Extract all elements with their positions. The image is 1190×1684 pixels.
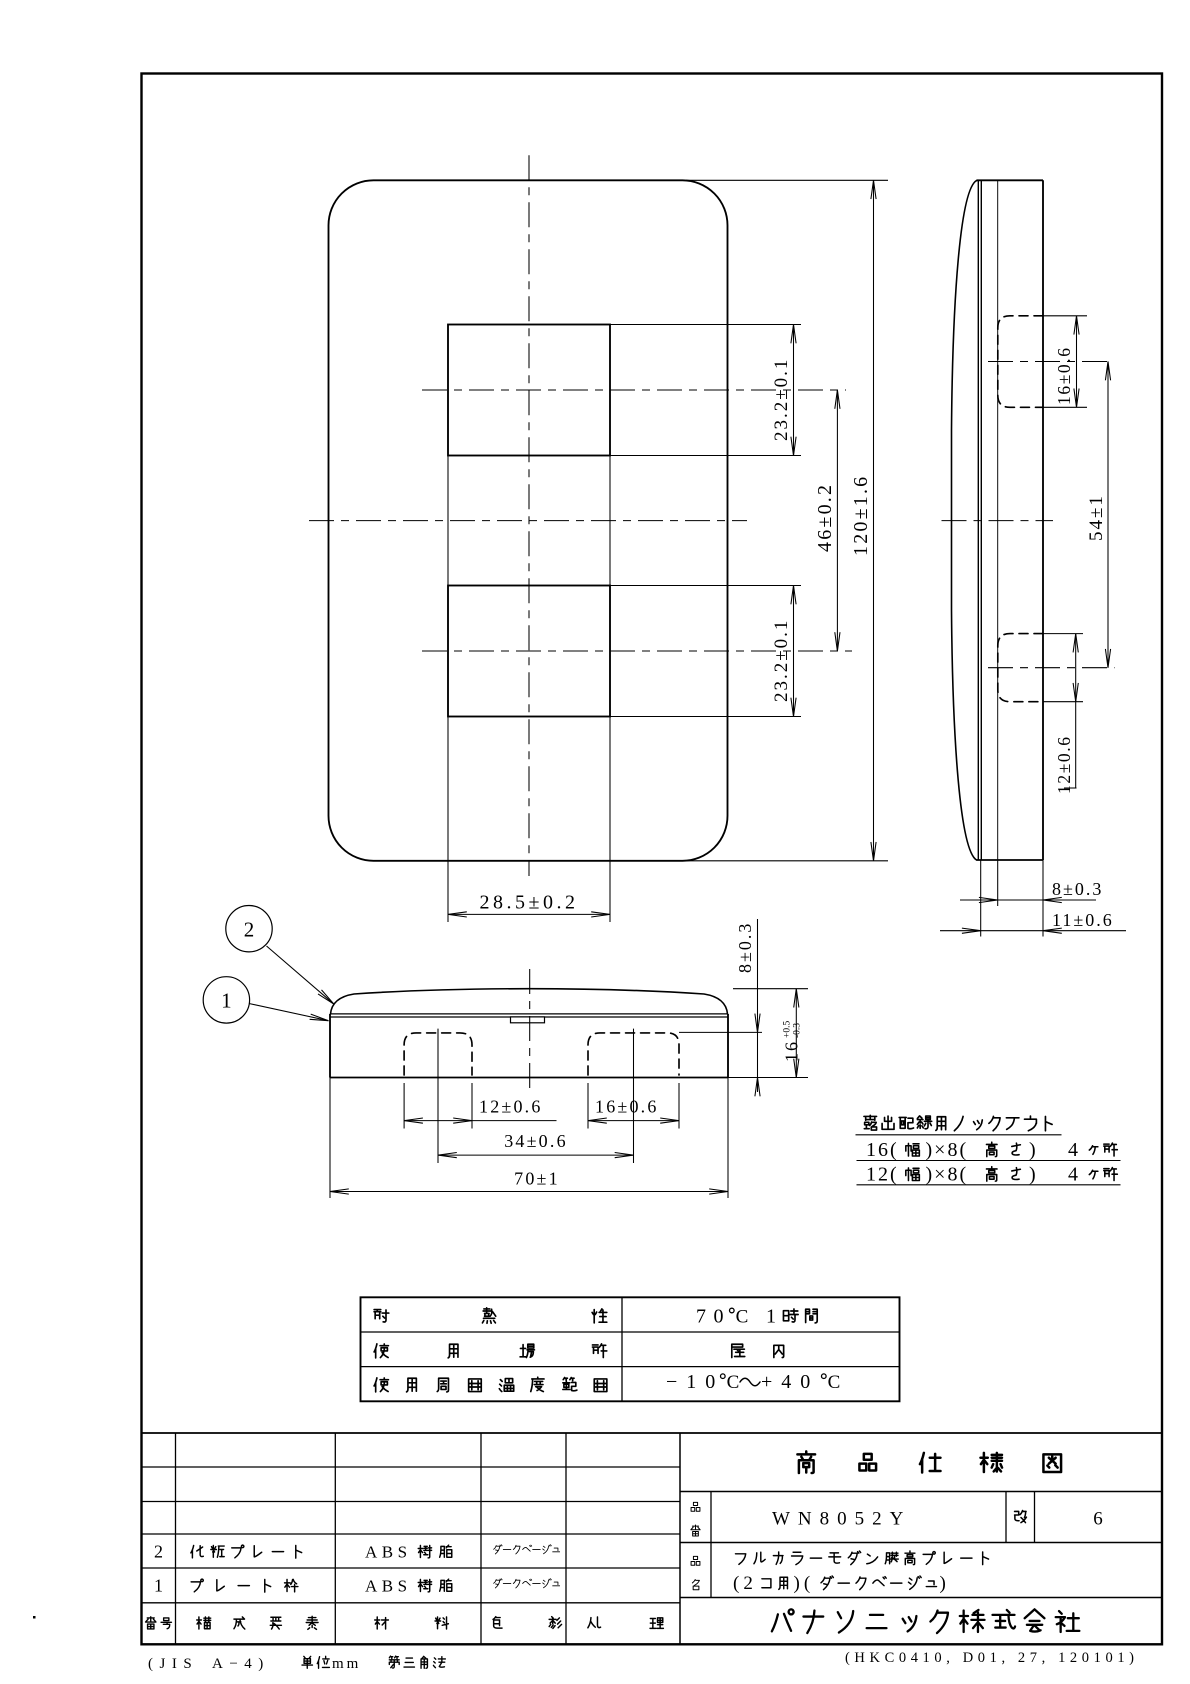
svg-text:12±0.6: 12±0.6: [1054, 735, 1074, 794]
svg-text:2: 2: [244, 918, 255, 942]
svg-text:(HKC0410, D01, 27, 120101): (HKC0410, D01, 27, 120101): [845, 1650, 1139, 1666]
svg-text:8±0.3: 8±0.3: [1052, 879, 1103, 899]
svg-text:): ): [1029, 1139, 1038, 1161]
svg-text:−10: −10: [666, 1371, 724, 1393]
svg-text:54±1: 54±1: [1086, 494, 1107, 541]
svg-text:16(: 16(: [866, 1139, 899, 1161]
svg-text:1: 1: [766, 1306, 776, 1328]
svg-text:4: 4: [1068, 1139, 1085, 1161]
svg-text:23.2±0.1: 23.2±0.1: [771, 358, 792, 441]
svg-text:+40: +40: [761, 1371, 819, 1393]
svg-text:(2: (2: [733, 1573, 757, 1594]
svg-text:C: C: [736, 1307, 749, 1328]
svg-text:-0.3: -0.3: [793, 1023, 803, 1038]
svg-text:16: 16: [782, 1040, 802, 1062]
svg-text:)(: )(: [794, 1573, 815, 1594]
svg-text:120±1.6: 120±1.6: [850, 475, 872, 556]
svg-text:34±0.6: 34±0.6: [504, 1131, 568, 1151]
svg-text:): ): [940, 1573, 950, 1594]
svg-text:6: 6: [1093, 1509, 1103, 1530]
svg-text:70±1: 70±1: [514, 1169, 560, 1189]
svg-text:23.2±0.1: 23.2±0.1: [771, 619, 792, 702]
svg-text:ABS: ABS: [365, 1543, 412, 1562]
svg-text:12±0.6: 12±0.6: [479, 1097, 543, 1117]
svg-text:1: 1: [154, 1576, 163, 1596]
svg-text:C: C: [727, 1372, 740, 1393]
svg-text:)×8(: )×8(: [926, 1164, 969, 1186]
svg-text:12(: 12(: [866, 1164, 899, 1186]
svg-text:4: 4: [1068, 1164, 1085, 1186]
svg-text:28.5±0.2: 28.5±0.2: [480, 892, 579, 914]
svg-text:ABS: ABS: [365, 1577, 412, 1596]
svg-text:46±0.2: 46±0.2: [814, 483, 836, 552]
svg-text:C: C: [828, 1372, 841, 1393]
svg-text:16±0.6: 16±0.6: [1054, 346, 1074, 405]
svg-text:8±0.3: 8±0.3: [735, 922, 755, 973]
svg-text:2: 2: [154, 1542, 163, 1562]
svg-text:): ): [1029, 1164, 1038, 1186]
svg-text:70: 70: [696, 1306, 731, 1328]
svg-text:(JIS: (JIS: [148, 1656, 198, 1672]
svg-text:11±0.6: 11±0.6: [1052, 910, 1114, 930]
svg-text:+0.5: +0.5: [783, 1021, 793, 1038]
svg-text:WN8052Y: WN8052Y: [772, 1509, 911, 1530]
svg-text:)×8(: )×8(: [926, 1139, 969, 1161]
svg-text:A−4): A−4): [212, 1656, 270, 1672]
svg-text:16±0.6: 16±0.6: [595, 1097, 659, 1117]
svg-text:1: 1: [221, 989, 232, 1013]
svg-text:mm: mm: [332, 1656, 361, 1672]
